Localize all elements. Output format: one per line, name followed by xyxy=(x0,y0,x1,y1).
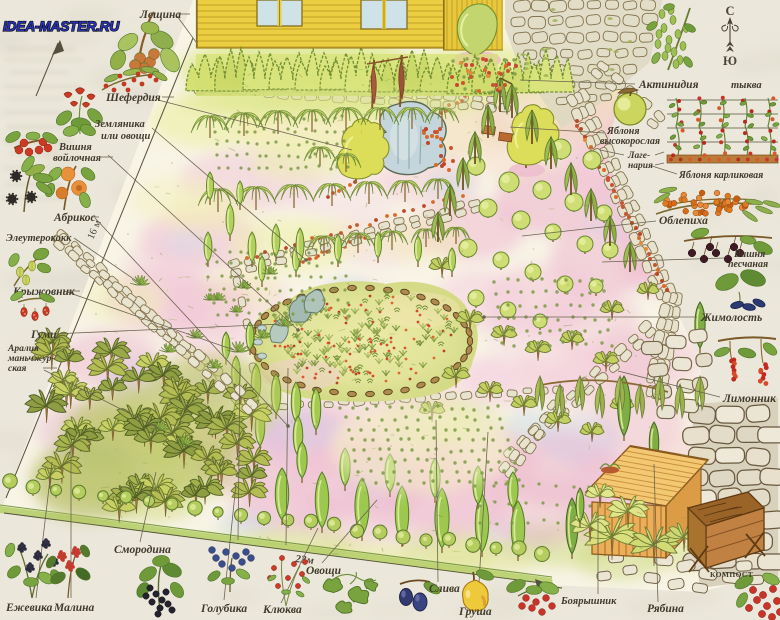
svg-text:Клюква: Клюква xyxy=(262,604,302,616)
svg-text:Ю: Ю xyxy=(723,54,737,68)
svg-text:Слива: Слива xyxy=(429,583,460,595)
svg-text:Элеутерококк: Элеутерококк xyxy=(6,233,72,244)
svg-text:Вишня: Вишня xyxy=(58,142,92,153)
svg-text:Яблоня карликовая: Яблоня карликовая xyxy=(678,170,763,181)
svg-text:Малина: Малина xyxy=(53,602,94,614)
svg-text:нария: нария xyxy=(628,161,653,171)
svg-text:маньчжур-: маньчжур- xyxy=(7,354,55,364)
svg-text:Рябина: Рябина xyxy=(647,603,684,615)
svg-text:или овощи: или овощи xyxy=(101,131,150,142)
svg-text:IDEA-MASTER.RU: IDEA-MASTER.RU xyxy=(3,18,120,34)
svg-text:Гуми: Гуми xyxy=(30,329,57,341)
svg-text:Земляника: Земляника xyxy=(94,119,145,130)
svg-text:Абрикос: Абрикос xyxy=(53,212,96,224)
svg-text:войлочная: войлочная xyxy=(53,153,102,164)
svg-text:ская: ская xyxy=(8,364,27,374)
svg-text:высокорослая: высокорослая xyxy=(600,136,660,147)
svg-text:Шефердия: Шефердия xyxy=(105,92,161,104)
svg-text:Жимолость: Жимолость xyxy=(700,312,762,324)
svg-text:С: С xyxy=(725,4,734,18)
svg-text:Смородина: Смородина xyxy=(114,544,171,556)
svg-text:Лимонник: Лимонник xyxy=(722,393,777,405)
svg-text:Ежевика: Ежевика xyxy=(5,602,53,614)
svg-text:Боярышник: Боярышник xyxy=(560,596,617,607)
svg-text:КОМПОСТ: КОМПОСТ xyxy=(710,570,753,579)
svg-text:Облепиха: Облепиха xyxy=(659,215,708,227)
svg-text:Лещина: Лещина xyxy=(139,9,181,21)
svg-text:Голубика: Голубика xyxy=(200,603,247,615)
svg-text:тыква: тыква xyxy=(731,80,762,91)
svg-text:Овощи: Овощи xyxy=(306,565,342,577)
svg-text:Аралия: Аралия xyxy=(7,344,39,354)
svg-text:песчаная: песчаная xyxy=(728,259,768,270)
svg-text:Лаге-: Лаге- xyxy=(627,151,650,161)
svg-text:Актинидия: Актинидия xyxy=(638,79,699,91)
svg-text:Груша: Груша xyxy=(458,606,492,618)
